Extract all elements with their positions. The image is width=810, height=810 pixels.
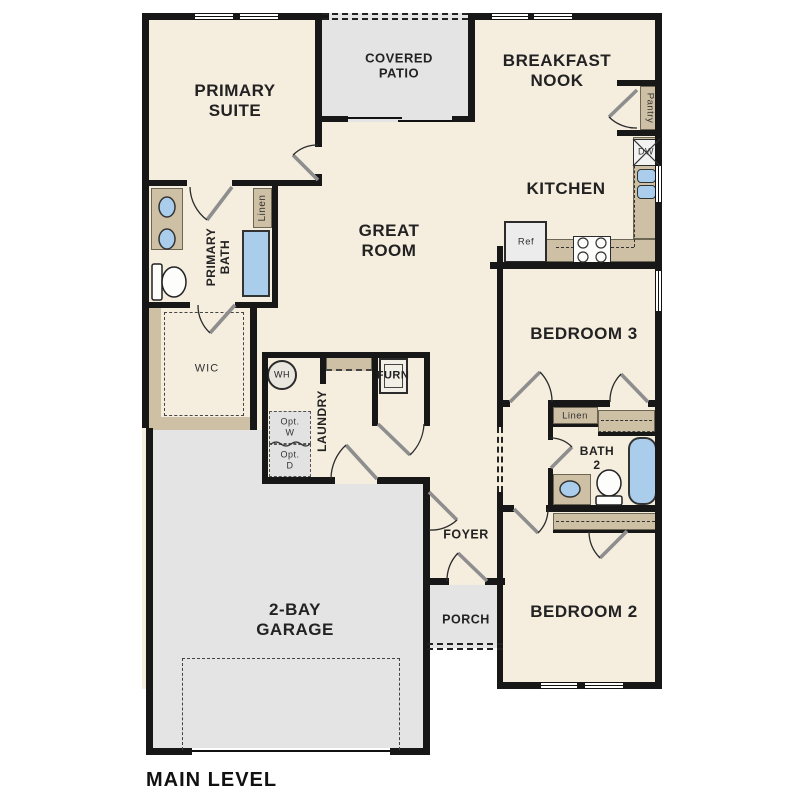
- wall-segment: [262, 352, 430, 358]
- label-refrigerator: Ref: [518, 236, 534, 247]
- wall-segment: [272, 186, 278, 308]
- wall-segment: [262, 477, 335, 484]
- window: [655, 166, 662, 202]
- wall-segment: [617, 130, 662, 136]
- wall-segment: [553, 424, 598, 427]
- label-linen-primary: Linen: [257, 195, 269, 222]
- label-wic: WIC: [195, 363, 219, 376]
- label-laundry: LAUNDRY: [315, 390, 329, 452]
- wall-segment: [497, 246, 503, 262]
- wall-segment: [424, 352, 430, 426]
- floor-plan: PRIMARY SUITE COVERED PATIO BREAKFAST NO…: [0, 0, 810, 810]
- porch-steps-dashed: [427, 643, 503, 650]
- cased-opening: [497, 427, 503, 492]
- label-pantry: Pantry: [644, 93, 655, 123]
- wall-segment: [452, 116, 475, 122]
- wall-segment: [372, 352, 378, 426]
- wall-segment: [655, 13, 662, 689]
- label-bedroom2: BEDROOM 2: [530, 602, 637, 622]
- wall-segment: [548, 400, 610, 407]
- label-garage: 2-BAY GARAGE: [256, 600, 334, 640]
- patio-edge-dashed: [322, 13, 468, 20]
- window: [195, 13, 233, 20]
- label-opt-washer: Opt. W: [280, 416, 299, 437]
- wall-segment: [648, 400, 662, 407]
- wall-segment: [497, 682, 662, 689]
- window: [240, 13, 278, 20]
- label-primary-bath: PRIMARY BATH: [204, 228, 232, 286]
- wall-segment: [553, 530, 658, 533]
- label-kitchen: KITCHEN: [526, 179, 605, 199]
- window: [541, 682, 577, 689]
- wall-segment: [548, 400, 553, 440]
- wall-segment: [320, 352, 326, 384]
- wall-segment: [146, 428, 153, 755]
- label-opt-dryer: Opt. D: [280, 449, 299, 470]
- patio-slider-door: [398, 120, 452, 122]
- label-breakfast-nook: BREAKFAST NOOK: [503, 51, 611, 91]
- wall-segment: [497, 505, 514, 512]
- wall-segment: [142, 13, 329, 20]
- plan-title: MAIN LEVEL: [146, 769, 277, 793]
- wall-segment: [142, 302, 190, 308]
- label-bedroom3: BEDROOM 3: [530, 324, 637, 344]
- window: [534, 13, 572, 20]
- wall-segment: [377, 477, 430, 484]
- label-linen-hall: Linen: [562, 410, 588, 421]
- wall-segment: [315, 116, 348, 122]
- label-water-heater: WH: [274, 370, 290, 381]
- patio-slider-door: [348, 117, 402, 119]
- label-foyer: FOYER: [443, 528, 489, 543]
- label-covered-patio: COVERED PATIO: [365, 51, 433, 82]
- wall-segment: [617, 80, 662, 86]
- wall-segment: [142, 13, 149, 428]
- wall-segment: [598, 432, 655, 436]
- label-porch: PORCH: [442, 613, 490, 628]
- wall-segment: [497, 492, 503, 688]
- wall-segment: [315, 13, 322, 147]
- wall-segment: [546, 505, 662, 512]
- wall-segment: [490, 262, 662, 269]
- garage-door-outline: [182, 658, 400, 750]
- wall-segment: [142, 180, 187, 186]
- label-dishwasher: DW: [638, 147, 654, 158]
- label-primary-suite: PRIMARY SUITE: [194, 81, 275, 121]
- wall-segment: [468, 13, 475, 122]
- window: [585, 682, 623, 689]
- wall-segment: [497, 400, 510, 407]
- wall-segment: [548, 468, 553, 512]
- garage-door-line: [192, 750, 390, 752]
- label-great-room: GREAT ROOM: [359, 221, 420, 261]
- wall-segment: [250, 308, 257, 430]
- wall-segment: [262, 352, 268, 483]
- label-furnace: FURN: [377, 370, 410, 383]
- wall-segment: [423, 484, 430, 755]
- label-bath2: BATH 2: [580, 444, 614, 472]
- window: [655, 271, 662, 311]
- window: [492, 13, 528, 20]
